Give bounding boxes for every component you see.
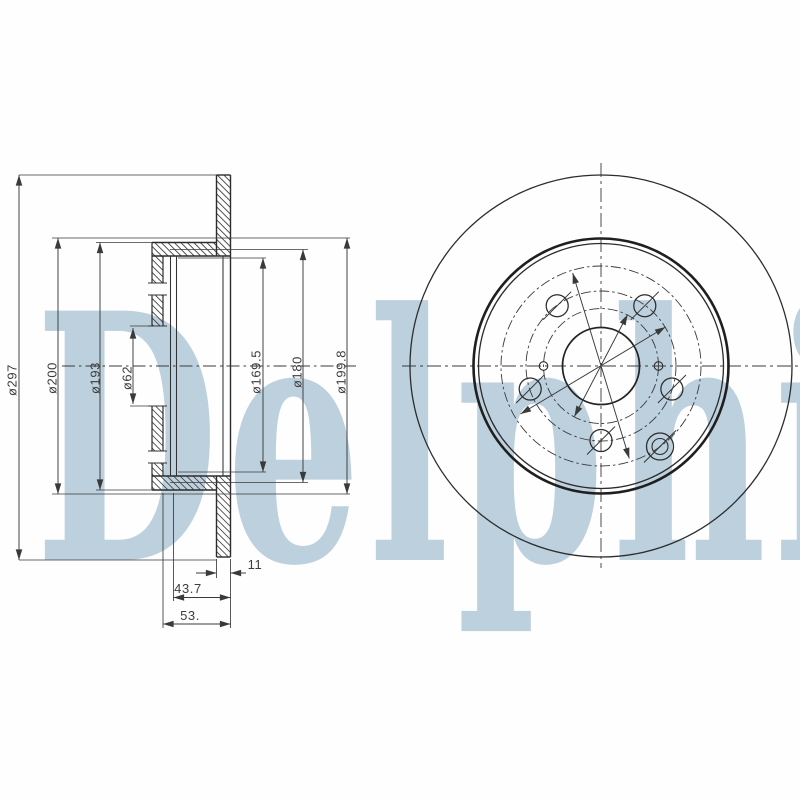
dim-label-180: ø180	[290, 356, 305, 388]
dim-label-od-297: ø297	[5, 364, 20, 396]
delphi-watermark: Delphi	[35, 240, 800, 641]
flange-segment-2	[152, 295, 163, 326]
drawing-page: Delphi	[0, 0, 800, 800]
dim-label-bore-62: ø62	[120, 366, 135, 390]
friction-ring-bottom-section	[217, 490, 231, 557]
flange-segment-4	[152, 463, 163, 476]
flange-segment-1	[152, 256, 163, 283]
dim-label-thickness-11: 11	[248, 557, 263, 572]
dim-label-193: ø193	[88, 362, 103, 394]
hat-wall-bottom-section	[152, 476, 231, 490]
dim-label-169-5: ø169.5	[249, 350, 264, 394]
dim-label-200: ø200	[45, 362, 60, 394]
brake-disc-drawing: Delphi	[0, 0, 800, 800]
dim-label-43-7: 43.7	[174, 581, 202, 596]
friction-ring-top-section	[217, 175, 231, 243]
delphi-watermark-text: Delphi	[35, 240, 800, 641]
dim-label-199-8: ø199.8	[334, 350, 349, 394]
flange-segment-3	[152, 406, 163, 451]
dim-label-53: 53.	[180, 608, 200, 623]
